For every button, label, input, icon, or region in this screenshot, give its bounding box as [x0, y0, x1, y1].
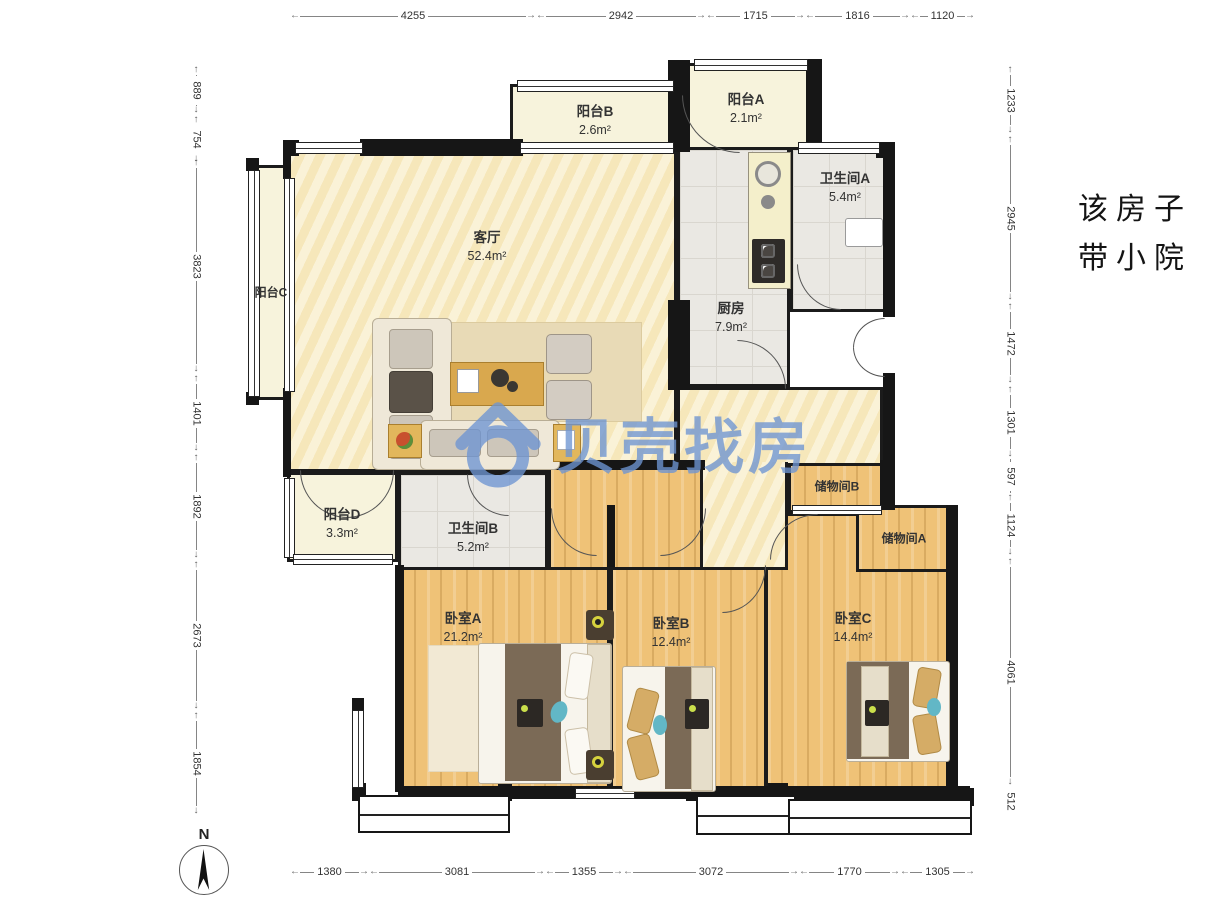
window	[517, 80, 674, 92]
arrow-right-icon: →	[526, 11, 536, 21]
door-arc-entrance-top	[853, 318, 885, 348]
dim-left-2: ↑754↓	[188, 115, 204, 158]
table-pad	[457, 369, 479, 393]
compass-north-label: N	[172, 826, 236, 843]
wall	[668, 300, 690, 390]
bed-tray	[685, 699, 709, 729]
dim-right-7: ↑4061↓	[1002, 557, 1018, 787]
kitchen-counter	[748, 152, 791, 289]
nightstand	[586, 610, 614, 640]
window	[284, 478, 295, 558]
bed-throw	[927, 698, 941, 716]
wall	[883, 147, 895, 317]
annotation-line-2: 带小院	[1078, 235, 1192, 284]
bay-window	[788, 799, 972, 835]
bay-window	[696, 795, 796, 835]
room-label-balcony-b: 阳台B 2.6m²	[577, 103, 614, 139]
armchair	[546, 380, 592, 420]
dim-left-1: ↑889↓	[188, 65, 204, 115]
dim-bottom-3: ←1355→	[545, 864, 623, 880]
bed-tray	[865, 700, 889, 726]
compass-needle-icon	[194, 849, 213, 890]
window	[792, 505, 882, 515]
dim-right-8: 512	[1002, 787, 1018, 816]
compass-circle	[179, 845, 229, 895]
sofa-loveseat	[420, 420, 560, 470]
window	[798, 142, 880, 154]
wall	[806, 59, 822, 154]
dim-left-3: ↑3823↓	[188, 158, 204, 374]
compass: N	[172, 826, 236, 895]
room-label-bath-a: 卫生间A 5.4m²	[820, 170, 870, 206]
window	[520, 142, 674, 154]
door-arc-entrance-bottom	[853, 347, 885, 377]
bay-window	[358, 795, 510, 833]
dim-right-2: ↑2945↓	[1002, 135, 1018, 302]
dim-bottom-1: ←1380→	[290, 864, 369, 880]
bed-throw	[653, 715, 667, 735]
room-label-storage-b: 储物间B	[815, 479, 860, 496]
cup	[507, 381, 518, 392]
room-label-bedroom-b: 卧室B 12.4m²	[652, 615, 691, 651]
bed-b	[622, 666, 716, 792]
window	[248, 170, 260, 397]
bed-headboard	[691, 667, 713, 791]
sofa-cushion	[389, 371, 433, 413]
wall	[283, 388, 291, 477]
window	[352, 710, 364, 788]
bed-c	[846, 661, 950, 762]
sofa-cushion	[389, 329, 433, 369]
room-label-balcony-d: 阳台D 3.3m²	[324, 506, 361, 542]
stove	[752, 239, 785, 283]
dim-right-5: 597	[1002, 459, 1018, 493]
room-label-storage-a: 储物间A	[882, 531, 927, 548]
room-label-bath-b: 卫生间B 5.2m²	[448, 520, 498, 556]
window	[694, 59, 808, 71]
bed-pillow	[912, 712, 943, 756]
room-label-balcony-a: 阳台A 2.1m²	[728, 91, 765, 127]
plant	[396, 432, 413, 449]
bed-tray	[517, 699, 543, 727]
table-pad	[557, 430, 575, 450]
dim-left-6: ↑2673↓	[188, 560, 204, 711]
wall	[883, 372, 895, 472]
annotation-line-1: 该房子	[1078, 186, 1192, 235]
bath-fixture	[845, 218, 883, 247]
kitchen-sink	[755, 161, 781, 187]
dim-right-4: ↑1301↓	[1002, 385, 1018, 459]
wall	[395, 565, 404, 792]
room-label-living: 客厅 52.4m²	[468, 229, 507, 265]
room-label-kitchen: 厨房 7.9m²	[715, 300, 747, 336]
dim-right-1: ↑1233↓	[1002, 65, 1018, 135]
wall	[880, 460, 895, 510]
armchair	[546, 334, 592, 374]
dim-bottom-6: ←1305→	[900, 864, 975, 880]
sofa-cushion	[429, 429, 481, 457]
wall	[283, 147, 291, 179]
floor-plan-canvas: 客厅 52.4m² 厨房 7.9m² 卫生间A 5.4m² 阳台B 2.6m² …	[0, 0, 1217, 904]
wall	[607, 505, 615, 567]
dim-bottom-4: ←3072→	[623, 864, 799, 880]
dim-left-4: ↑1401↓	[188, 374, 204, 453]
plant-table	[388, 424, 422, 458]
room-hall	[677, 387, 883, 472]
side-table	[553, 424, 581, 462]
dim-left-5: ↑1892↓	[188, 453, 204, 560]
dim-top-4: ←1816→	[805, 8, 910, 24]
window	[293, 554, 393, 565]
dim-left-7: ↑1854↓	[188, 711, 204, 816]
nightstand	[586, 750, 614, 780]
dim-right-3: ↑1472↓	[1002, 302, 1018, 385]
dim-top-5: ←1120→	[910, 8, 975, 24]
wall	[360, 139, 523, 156]
dim-right-6: ↑1124↓	[1002, 493, 1018, 557]
dim-top-3: ←1715→	[706, 8, 805, 24]
room-label-bedroom-c: 卧室C 14.4m²	[834, 610, 873, 646]
room-label-bedroom-a: 卧室A 21.2m²	[444, 610, 483, 646]
annotation-note: 该房子 带小院	[1078, 186, 1192, 283]
dim-top-1: ←4255→	[290, 8, 536, 24]
coffee-table	[450, 362, 544, 406]
arrow-left-icon: ←	[290, 11, 300, 21]
window	[295, 142, 363, 154]
dim-bottom-2: ←3081→	[369, 864, 545, 880]
sofa-cushion	[487, 429, 539, 457]
bed-pillow	[626, 733, 661, 782]
dim-top-2: ←2942→	[536, 8, 706, 24]
dim-bottom-5: ←1770→	[799, 864, 900, 880]
room-label-balcony-c: 阳台C	[255, 285, 288, 302]
faucet	[761, 195, 775, 209]
